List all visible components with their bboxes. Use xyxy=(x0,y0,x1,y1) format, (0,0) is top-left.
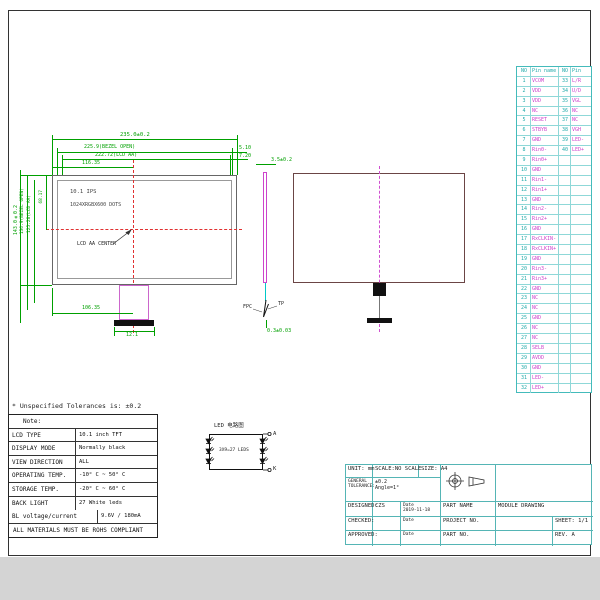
pin-name xyxy=(570,364,591,373)
pin-row: 13GND xyxy=(517,196,591,206)
ext-line xyxy=(52,135,53,175)
dim-width-outline: 235.0±0.2 xyxy=(120,132,150,138)
pin-row: 5RESET37NC xyxy=(517,116,591,126)
pin-name: U/D xyxy=(570,87,591,96)
pin-name xyxy=(570,304,591,313)
note-value: Normally black xyxy=(75,442,157,455)
pin-name: L/R xyxy=(570,77,591,86)
pin-name: VCOM xyxy=(530,77,558,86)
pin-name: SELB xyxy=(530,344,558,353)
pin-row: 31LED- xyxy=(517,374,591,384)
terminal-a-label: A xyxy=(273,431,276,437)
pin-name: Rin0+ xyxy=(530,156,558,165)
pin-name xyxy=(570,265,591,274)
pin-number: 9 xyxy=(517,156,530,165)
pin-name: GND xyxy=(530,364,558,373)
pin-name: GND xyxy=(530,314,558,323)
pin-number: 38 xyxy=(558,126,570,135)
ext-line xyxy=(20,175,52,176)
pin-number xyxy=(558,235,570,244)
note-value: 27 White leds xyxy=(75,497,157,511)
note-value: -20° C ~ 60° C xyxy=(75,483,157,496)
pin-name: Rin2- xyxy=(530,205,558,214)
back-fpc-line xyxy=(379,296,380,318)
unit-cell: UNIT: mm xyxy=(346,465,373,478)
pin-number: 3 xyxy=(517,97,530,106)
pin-name xyxy=(570,215,591,224)
ext-line xyxy=(266,320,267,328)
project-no-value-cell xyxy=(496,517,553,531)
notes-title-row: Note: xyxy=(9,415,157,429)
pin-number xyxy=(558,275,570,284)
pin-table: NO Pin name NO Pin name 1VCOM33L/R2VDD34… xyxy=(516,66,592,393)
pin-row: 9Rin0+ xyxy=(517,156,591,166)
tolerance-value-cell: ±0.2 Angle=1° xyxy=(373,478,441,502)
pin-number xyxy=(558,225,570,234)
pin-row: 15Rin2+ xyxy=(517,215,591,225)
pin-row: 32LED+ xyxy=(517,384,591,394)
pin-number: 5 xyxy=(517,116,530,125)
pin-number: 37 xyxy=(558,116,570,125)
checked-date-cell: Date xyxy=(401,517,441,531)
pin-name: NC xyxy=(530,107,558,116)
pin-row: 1VCOM33L/R xyxy=(517,77,591,87)
pin-number: 6 xyxy=(517,126,530,135)
ext-line xyxy=(20,285,52,286)
note-label: DISPLAY MODE xyxy=(9,442,75,455)
pin-number xyxy=(558,344,570,353)
pin-row: 23NC xyxy=(517,294,591,304)
pin-name: NC xyxy=(530,334,558,343)
dim-height-aa: 125.28(LCD AA) xyxy=(28,195,33,233)
pin-number xyxy=(558,186,570,195)
pin-name xyxy=(570,354,591,363)
pin-name xyxy=(570,285,591,294)
pin-row: 16GND xyxy=(517,225,591,235)
pin-name: Rin1- xyxy=(530,176,558,185)
pin-row: 25GND xyxy=(517,314,591,324)
note-row: OPERATING TEMP.-10° C ~ 50° C xyxy=(9,469,157,483)
dim-line xyxy=(256,164,276,165)
pin-number: 31 xyxy=(517,374,530,383)
pin-name: Rin2+ xyxy=(530,215,558,224)
side-view-fpc-upper xyxy=(265,283,266,301)
pin-number xyxy=(558,215,570,224)
pin-row: 10GND xyxy=(517,166,591,176)
note-value: ALL xyxy=(75,456,157,469)
ext-line xyxy=(230,155,231,175)
note-row: STORAGE TEMP.-20° C ~ 60° C xyxy=(9,483,157,497)
pin-number xyxy=(558,294,570,303)
pin-number: 21 xyxy=(517,275,530,284)
pin-number: 17 xyxy=(517,235,530,244)
pin-number xyxy=(558,166,570,175)
pin-number xyxy=(558,304,570,313)
pin-row: 14Rin2- xyxy=(517,205,591,215)
pin-row: 27NC xyxy=(517,334,591,344)
pin-name: GND xyxy=(530,196,558,205)
pin-name: LED+ xyxy=(530,384,558,394)
pin-name: LED- xyxy=(530,374,558,383)
ext-line xyxy=(62,155,63,175)
pin-number: 36 xyxy=(558,107,570,116)
pin-number: 24 xyxy=(517,304,530,313)
pin-name xyxy=(570,294,591,303)
pin-number: 7 xyxy=(517,136,530,145)
dim-line xyxy=(52,313,133,314)
pin-row: 26NC xyxy=(517,324,591,334)
note-label: LCD TYPE xyxy=(9,429,75,442)
pin-name: GND xyxy=(530,285,558,294)
designed-value-cell: CZS xyxy=(373,502,401,517)
pin-row: 2VDD34U/D xyxy=(517,87,591,97)
pin-number xyxy=(558,255,570,264)
pin-col-header: NO xyxy=(517,67,530,76)
notes-table: Note: LCD TYPE10.1 inch TFT Transmissive… xyxy=(8,414,158,538)
pin-number xyxy=(558,314,570,323)
pin-name xyxy=(570,156,591,165)
pin-name: NC xyxy=(530,304,558,313)
pin-name xyxy=(570,186,591,195)
pin-number xyxy=(558,196,570,205)
pin-row: 6STBYB38VGH xyxy=(517,126,591,136)
approved-value-cell xyxy=(373,531,401,546)
panel-type-label: 10.1 IPS xyxy=(70,189,97,195)
pin-number: 40 xyxy=(558,146,570,155)
pin-row: 21Rin3+ xyxy=(517,275,591,285)
dim-center-x: 116.35 xyxy=(82,161,100,167)
centerline-horizontal xyxy=(46,229,242,230)
pin-number: 4 xyxy=(517,107,530,116)
panel-resolution-label: 1024XRGBX600 DOTS xyxy=(70,203,121,209)
part-no-value-cell xyxy=(496,531,553,546)
aa-center-label: LCD AA CENTER xyxy=(77,242,116,248)
pin-number: 14 xyxy=(517,205,530,214)
pin-row: 28SELB xyxy=(517,344,591,354)
pin-name: NC xyxy=(570,116,591,125)
note-value: 10.1 inch TFT Transmissive xyxy=(75,429,157,442)
part-name-value-cell: MODULE DRAWING xyxy=(496,502,593,517)
pin-number xyxy=(558,354,570,363)
pin-row: 12Rin1+ xyxy=(517,186,591,196)
dim-thickness: 3.5±0.2 xyxy=(271,158,292,164)
pin-name: GND xyxy=(530,255,558,264)
pin-number: 28 xyxy=(517,344,530,353)
ext-line xyxy=(52,288,53,316)
angle-value: Angle=1° xyxy=(375,485,399,491)
pin-number: 22 xyxy=(517,285,530,294)
pin-name: Rin3+ xyxy=(530,275,558,284)
approved-date-cell: Date xyxy=(401,531,441,546)
pin-number: 33 xyxy=(558,77,570,86)
pin-name: VGL xyxy=(570,97,591,106)
fpc-tail xyxy=(119,285,149,320)
note-label: BL voltage/current xyxy=(9,510,97,523)
pin-number: 2 xyxy=(517,87,530,96)
pin-row: 22GND xyxy=(517,285,591,295)
pin-number xyxy=(558,374,570,383)
dim-right-2: 7.20 xyxy=(239,154,251,160)
pin-number xyxy=(558,334,570,343)
pin-name: NC xyxy=(530,294,558,303)
pin-name xyxy=(570,374,591,383)
dim-height-bezel: 136.9(BEZEL OPEN) xyxy=(21,188,26,234)
pin-number: 26 xyxy=(517,324,530,333)
tolerance-note: * Unspecified Tolerances is: ±0.2 xyxy=(12,403,141,410)
side-view-glass xyxy=(263,172,267,283)
title-block-spacer xyxy=(496,465,593,502)
pin-number: 8 xyxy=(517,146,530,155)
dim-bottom-2: 12.1 xyxy=(126,333,138,339)
projection-symbol-cell xyxy=(441,465,496,502)
led-diagram-title: LED 电路图 xyxy=(214,423,244,429)
pin-number: 23 xyxy=(517,294,530,303)
pin-number: 32 xyxy=(517,384,530,394)
pin-name: LED+ xyxy=(570,146,591,155)
pin-name: VDD xyxy=(530,97,558,106)
dim-height-outline: 143.0±0.2 xyxy=(14,205,20,235)
pin-row: 8Rin0-40LED+ xyxy=(517,146,591,156)
fpc-label: FPC xyxy=(243,305,252,311)
project-no-label-cell: PROJECT NO. xyxy=(441,517,496,531)
pin-row: 7GND39LED- xyxy=(517,136,591,146)
pin-row: 29AVDD xyxy=(517,354,591,364)
pin-name xyxy=(570,255,591,264)
dim-width-aa: 222.72(LCD AA) xyxy=(95,153,137,159)
pin-number: 15 xyxy=(517,215,530,224)
note-label: STORAGE TEMP. xyxy=(9,483,75,496)
notes-title: Note: xyxy=(9,415,41,428)
note-value: 9.6V / 180mA xyxy=(97,510,157,523)
title-block: UNIT: mm SCALE:NO SCALE SIZE: A4 GENERAL… xyxy=(345,464,592,545)
note-row: DISPLAY MODENormally black xyxy=(9,442,157,456)
dim-line xyxy=(46,175,47,230)
pin-number: 1 xyxy=(517,77,530,86)
led-count-label: 3X9=27 LEDS xyxy=(219,449,249,454)
note-label: OPERATING TEMP. xyxy=(9,469,75,482)
notes-footer-row: ALL MATERIALS MUST BE ROHS COMPLIANT xyxy=(9,524,157,538)
pin-name: Rin3- xyxy=(530,265,558,274)
part-name-label-cell: PART NAME xyxy=(441,502,496,517)
pin-col-header: Pin name xyxy=(530,67,558,76)
scale-cell: SCALE:NO SCALE xyxy=(373,465,419,478)
dim-line xyxy=(52,167,133,168)
pin-number xyxy=(558,176,570,185)
pin-name: Rin1+ xyxy=(530,186,558,195)
pin-name xyxy=(570,275,591,284)
pin-number: 11 xyxy=(517,176,530,185)
dim-fpc-thickness: 0.3±0.03 xyxy=(267,329,291,335)
pin-name: RxCLKIN+ xyxy=(530,245,558,254)
pin-name xyxy=(570,334,591,343)
pin-number: 10 xyxy=(517,166,530,175)
pin-number: 39 xyxy=(558,136,570,145)
rev-cell: REV. A xyxy=(553,531,593,546)
note-value: -10° C ~ 50° C xyxy=(75,469,157,482)
designed-date-cell: Date 2019-11-18 xyxy=(401,502,441,517)
note-label: VIEW DIRECTION xyxy=(9,456,75,469)
pin-name xyxy=(570,324,591,333)
pin-name: LED- xyxy=(570,136,591,145)
pin-name: GND xyxy=(530,166,558,175)
pin-number xyxy=(558,265,570,274)
designed-label-cell: DESIGNED: xyxy=(346,502,373,517)
pin-number: 12 xyxy=(517,186,530,195)
pin-name: RxCLKIN- xyxy=(530,235,558,244)
pin-number: 29 xyxy=(517,354,530,363)
pin-number: 25 xyxy=(517,314,530,323)
pin-row: 11Rin1- xyxy=(517,176,591,186)
pin-name xyxy=(570,344,591,353)
note-label: BACK LIGHT xyxy=(9,497,75,511)
dim-center-y: 68.17 xyxy=(40,190,45,204)
approved-label-cell: APPROVED: xyxy=(346,531,373,546)
pin-number xyxy=(558,245,570,254)
back-connector xyxy=(373,283,386,296)
pin-number xyxy=(558,285,570,294)
pin-name: STBYB xyxy=(530,126,558,135)
back-fpc-connector xyxy=(367,318,392,323)
dim-line xyxy=(52,139,237,140)
pin-row: 19GND xyxy=(517,255,591,265)
pin-number: 16 xyxy=(517,225,530,234)
general-tolerance-cell: GENERAL TOLERANCE: xyxy=(346,478,373,502)
notes-footer: ALL MATERIALS MUST BE ROHS COMPLIANT xyxy=(9,524,143,538)
ext-line xyxy=(237,135,238,175)
pin-table-header: NO Pin name NO Pin name xyxy=(517,67,591,77)
pin-row: 20Rin3- xyxy=(517,265,591,275)
checked-label-cell: CHECKED: xyxy=(346,517,373,531)
pin-number: 13 xyxy=(517,196,530,205)
pin-number: 27 xyxy=(517,334,530,343)
pin-number: 18 xyxy=(517,245,530,254)
pin-number xyxy=(558,364,570,373)
pin-number xyxy=(558,384,570,394)
pin-name xyxy=(570,205,591,214)
pin-name: NC xyxy=(530,324,558,333)
dim-right-1: 5.10 xyxy=(239,146,251,152)
general-tolerance-label-2: TOLERANCE: xyxy=(348,484,375,489)
drawing-sheet: 10.1 IPS 1024XRGBX600 DOTS LCD AA CENTER… xyxy=(0,0,600,600)
pin-name xyxy=(570,235,591,244)
pin-number: 30 xyxy=(517,364,530,373)
dim-bottom-1: 106.35 xyxy=(82,306,100,312)
pin-col-header: Pin name xyxy=(570,67,591,76)
pin-name: AVDD xyxy=(530,354,558,363)
pin-name xyxy=(570,196,591,205)
pin-number xyxy=(558,205,570,214)
pin-name: GND xyxy=(530,225,558,234)
pin-number: 19 xyxy=(517,255,530,264)
sheet-bottom-margin xyxy=(0,557,600,600)
pin-number: 35 xyxy=(558,97,570,106)
dim-width-bezel: 225.9(BEZEL OPEN) xyxy=(84,145,135,151)
sheet-cell: SHEET: 1/1 xyxy=(553,517,593,531)
dim-line xyxy=(57,152,247,153)
pin-name: VDD xyxy=(530,87,558,96)
pin-name: VGH xyxy=(570,126,591,135)
pin-number xyxy=(558,156,570,165)
pin-number: 34 xyxy=(558,87,570,96)
pin-row: 30GND xyxy=(517,364,591,374)
pin-row: 24NC xyxy=(517,304,591,314)
note-row: BACK LIGHT27 White leds xyxy=(9,497,157,511)
note-row: LCD TYPE10.1 inch TFT Transmissive xyxy=(9,429,157,443)
pin-name xyxy=(570,314,591,323)
pin-name xyxy=(570,225,591,234)
tp-label: TP xyxy=(278,302,284,308)
pin-row: 4NC36NC xyxy=(517,107,591,117)
pin-col-header: NO xyxy=(558,67,570,76)
pin-number xyxy=(558,324,570,333)
pin-name xyxy=(570,176,591,185)
pin-name: RESET xyxy=(530,116,558,125)
pin-name xyxy=(570,166,591,175)
notes-bl-row: BL voltage/current 9.6V / 180mA xyxy=(9,510,157,524)
ext-line xyxy=(154,327,155,336)
pin-name xyxy=(570,384,591,394)
note-row: VIEW DIRECTIONALL xyxy=(9,456,157,470)
fpc-connector xyxy=(114,320,154,326)
size-cell: SIZE: A4 xyxy=(419,465,441,478)
checked-value-cell xyxy=(373,517,401,531)
pin-name xyxy=(570,245,591,254)
date-value: 2019-11-18 xyxy=(403,508,430,513)
pin-name: Rin0- xyxy=(530,146,558,155)
terminal-k-label: K xyxy=(273,466,276,472)
pin-number: 20 xyxy=(517,265,530,274)
pin-row: 3VDD35VGL xyxy=(517,97,591,107)
pin-name: GND xyxy=(530,136,558,145)
pin-row: 18RxCLKIN+ xyxy=(517,245,591,255)
pin-name: NC xyxy=(570,107,591,116)
pin-row: 17RxCLKIN- xyxy=(517,235,591,245)
part-no-label-cell: PART NO. xyxy=(441,531,496,546)
